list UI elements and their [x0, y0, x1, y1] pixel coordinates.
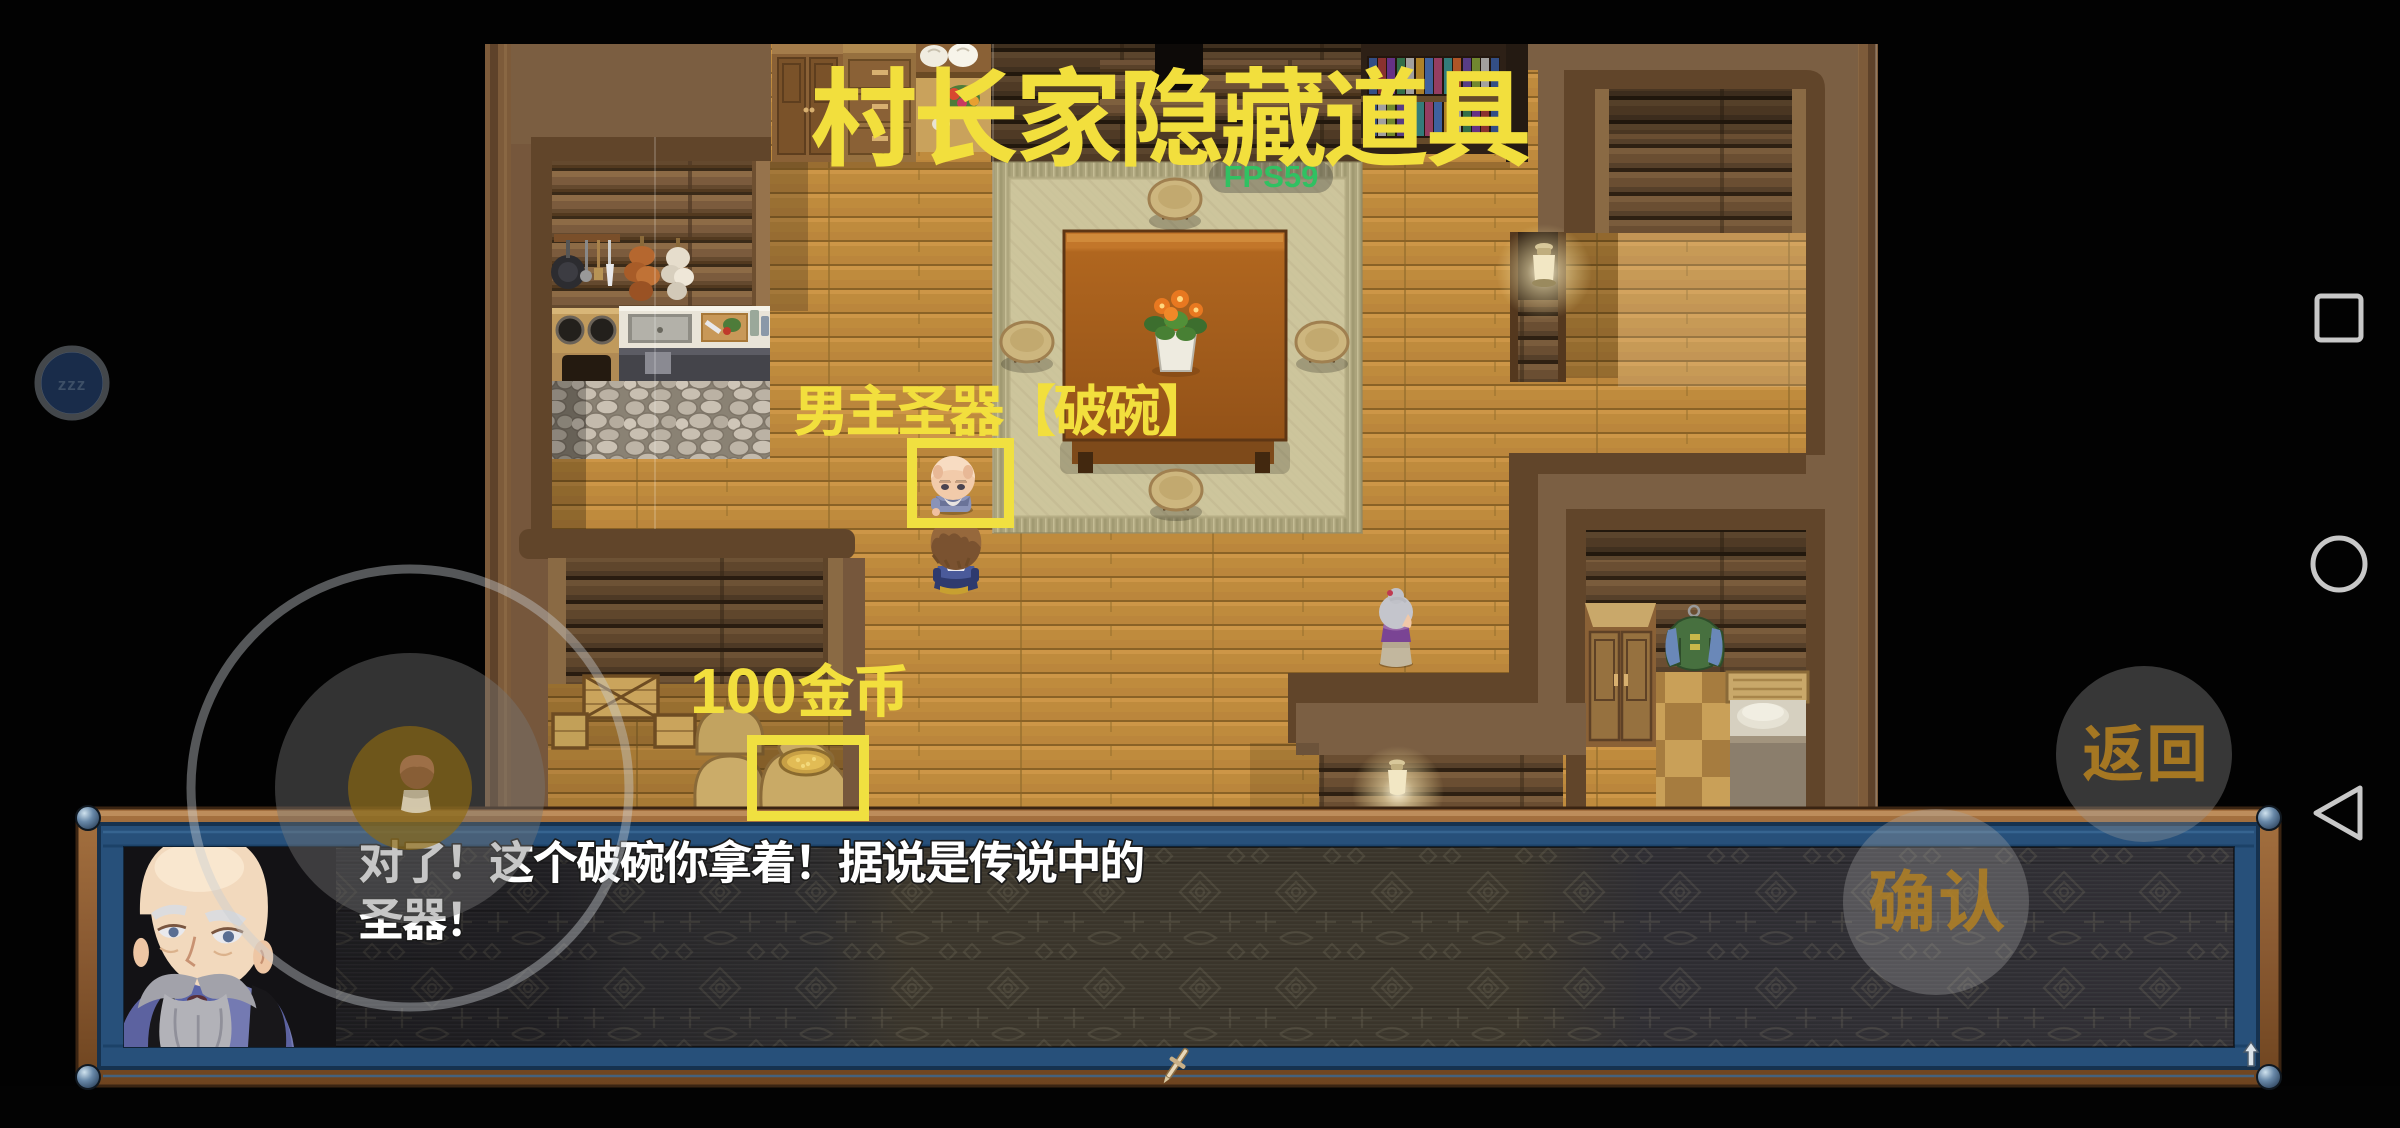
svg-text:zzz: zzz: [58, 375, 87, 394]
svg-text:FPS59: FPS59: [1224, 159, 1319, 194]
svg-text:100: 100: [690, 655, 797, 727]
